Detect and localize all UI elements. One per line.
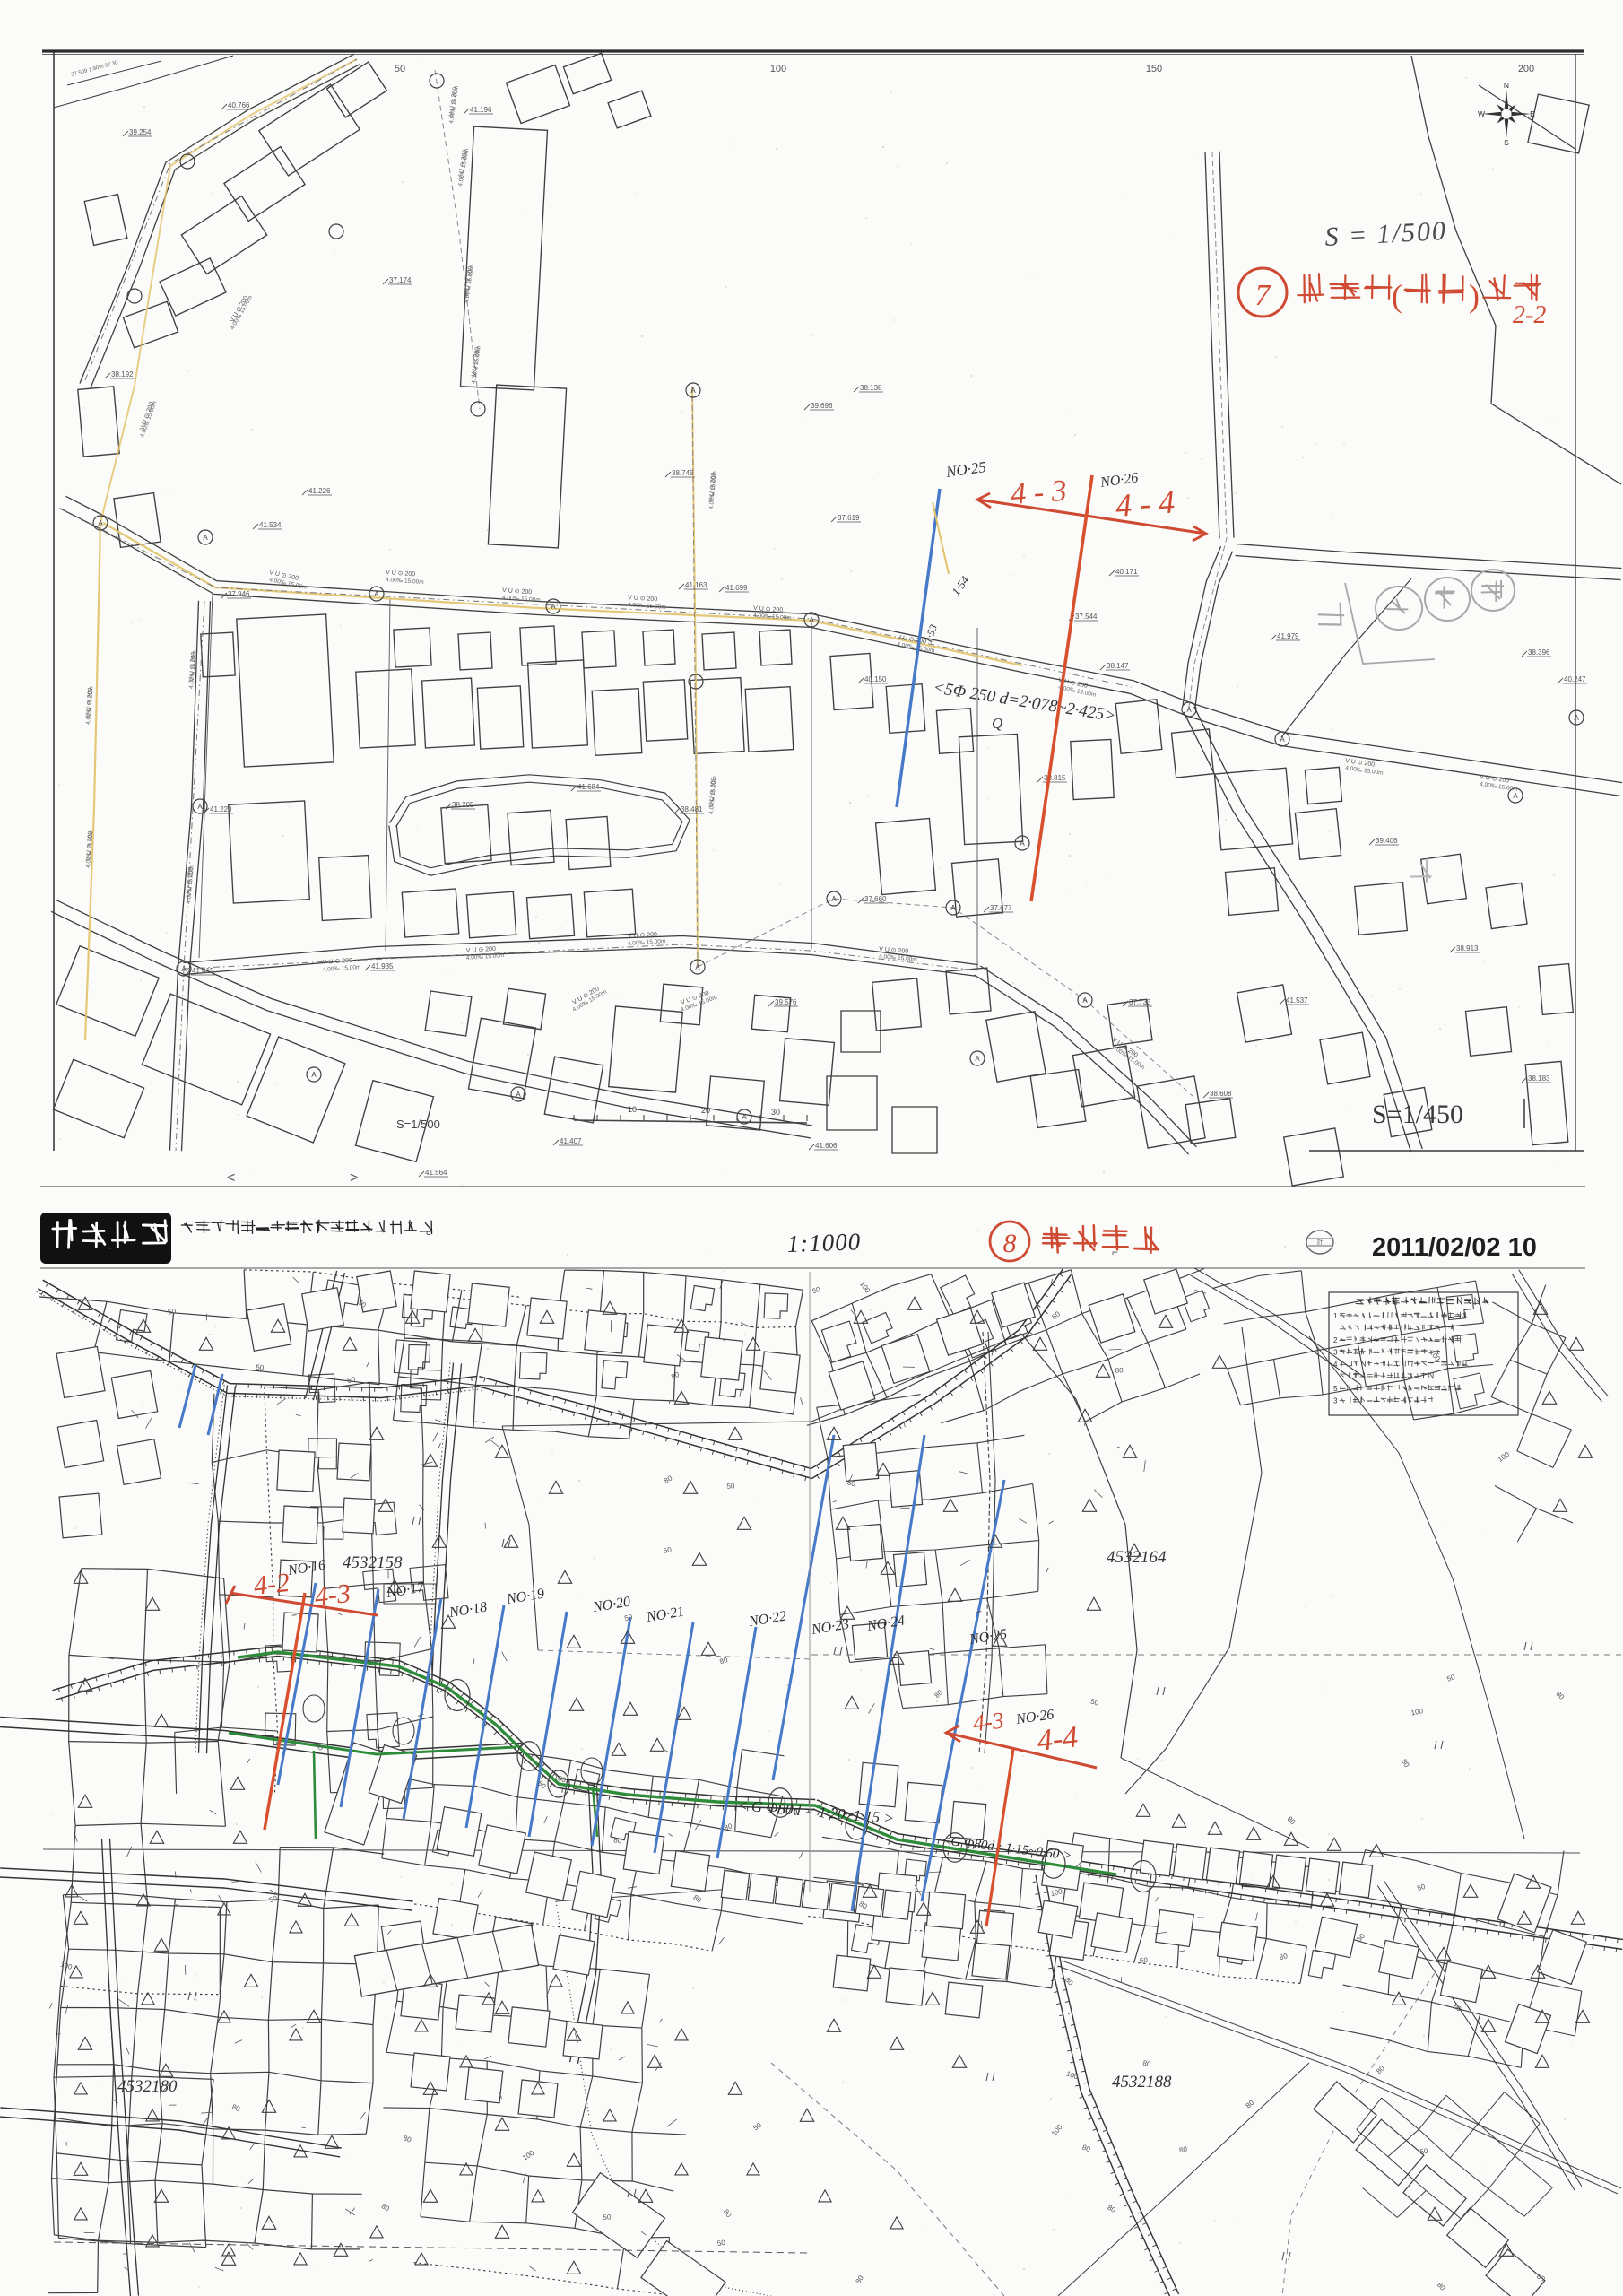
- svg-text:4-3: 4-3: [972, 1708, 1006, 1736]
- svg-text:4532180: 4532180: [117, 2077, 178, 2096]
- svg-text:37.619: 37.619: [838, 514, 860, 522]
- svg-text:38.396: 38.396: [1528, 648, 1550, 657]
- svg-text:41.220: 41.220: [210, 805, 232, 813]
- svg-text:A: A: [831, 895, 837, 903]
- svg-text:A: A: [311, 1071, 317, 1079]
- svg-text:50: 50: [1140, 1956, 1149, 1965]
- svg-text:20: 20: [701, 1106, 710, 1115]
- svg-text:3: 3: [1333, 1397, 1338, 1405]
- svg-text:S=1/450: S=1/450: [1372, 1100, 1463, 1129]
- svg-text:41.935: 41.935: [371, 962, 394, 970]
- svg-text:41.684: 41.684: [577, 783, 600, 791]
- svg-text:4532164: 4532164: [1107, 1548, 1167, 1567]
- svg-text:A: A: [1513, 792, 1518, 800]
- svg-text:41.415: 41.415: [192, 967, 214, 975]
- svg-text:50: 50: [256, 1363, 265, 1372]
- svg-text:50: 50: [603, 2213, 612, 2222]
- svg-text:4-4: 4-4: [1036, 1720, 1080, 1758]
- svg-text:37.174: 37.174: [389, 276, 412, 284]
- svg-text:A: A: [950, 904, 956, 912]
- svg-text:5: 5: [1333, 1385, 1338, 1393]
- svg-text:200: 200: [1518, 64, 1534, 74]
- svg-text:A: A: [1574, 714, 1579, 722]
- svg-text:2011/02/02 10: 2011/02/02 10: [1372, 1233, 1537, 1262]
- svg-text:39.576: 39.576: [775, 998, 797, 1006]
- svg-text:30: 30: [771, 1108, 780, 1117]
- svg-text:。: 。: [426, 1222, 438, 1237]
- svg-text:37.733: 37.733: [1129, 998, 1151, 1006]
- svg-text:37.660: 37.660: [864, 895, 887, 903]
- svg-text:38.205: 38.205: [452, 801, 474, 809]
- svg-text:1:1000: 1:1000: [786, 1228, 861, 1257]
- svg-text:41.606: 41.606: [815, 1142, 838, 1150]
- svg-text:4532188: 4532188: [1112, 2073, 1172, 2092]
- svg-text:8: 8: [1003, 1229, 1017, 1258]
- svg-text:A: A: [1020, 839, 1025, 848]
- svg-text:A: A: [809, 616, 814, 624]
- svg-text:(: (: [1392, 278, 1402, 314]
- svg-text:): ): [1469, 278, 1480, 314]
- svg-text:40.171: 40.171: [1115, 568, 1138, 576]
- svg-text:A: A: [1280, 735, 1285, 744]
- svg-text:10: 10: [628, 1105, 637, 1114]
- svg-text:A: A: [516, 1091, 521, 1099]
- svg-text:41.226: 41.226: [308, 487, 331, 495]
- svg-text:38.147: 38.147: [1107, 662, 1129, 670]
- svg-text:2: 2: [1333, 1336, 1338, 1344]
- svg-text:39.254: 39.254: [129, 128, 152, 136]
- svg-text:150: 150: [1146, 64, 1162, 74]
- svg-text:37.946: 37.946: [228, 590, 250, 598]
- svg-text:A: A: [197, 803, 203, 811]
- svg-text:50: 50: [726, 1482, 735, 1491]
- svg-text:40.766: 40.766: [228, 101, 250, 109]
- svg-text:3: 3: [1333, 1349, 1338, 1357]
- svg-text:41.196: 41.196: [470, 106, 492, 114]
- svg-text:38.192: 38.192: [111, 370, 134, 378]
- svg-text:>: >: [350, 1170, 358, 1186]
- svg-text:38.913: 38.913: [1456, 944, 1479, 952]
- svg-text:2-2: 2-2: [1513, 301, 1546, 329]
- svg-text:W: W: [1478, 109, 1485, 118]
- svg-text:A: A: [98, 519, 103, 527]
- svg-text:<: <: [227, 1170, 235, 1186]
- svg-text:38.138: 38.138: [860, 384, 882, 392]
- svg-text:A: A: [551, 603, 556, 611]
- svg-text:80: 80: [1115, 1366, 1124, 1374]
- svg-text:7: 7: [1255, 279, 1272, 312]
- svg-text:A: A: [975, 1055, 980, 1063]
- svg-text:38.183: 38.183: [1528, 1074, 1550, 1083]
- svg-text:41.163: 41.163: [685, 581, 707, 589]
- svg-text:A: A: [203, 534, 208, 542]
- svg-text:1: 1: [1333, 1312, 1338, 1320]
- svg-text:A: A: [695, 963, 700, 971]
- svg-text:100: 100: [770, 64, 786, 74]
- svg-text:4 - 4: 4 - 4: [1115, 483, 1176, 524]
- svg-text:S: S: [1504, 138, 1509, 147]
- svg-text:40.247: 40.247: [1564, 675, 1586, 683]
- svg-text:41.407: 41.407: [560, 1137, 582, 1145]
- svg-text:37.677: 37.677: [990, 904, 1012, 912]
- svg-text:計: 計: [1317, 1238, 1324, 1246]
- svg-text:A: A: [1082, 996, 1088, 1004]
- svg-text:N: N: [1504, 81, 1509, 90]
- svg-text:A: A: [742, 1113, 747, 1121]
- svg-text:50: 50: [395, 64, 405, 74]
- svg-text:41.699: 41.699: [725, 584, 748, 592]
- svg-text:41.537: 41.537: [1286, 996, 1308, 1004]
- svg-text:39.406: 39.406: [1376, 837, 1398, 845]
- svg-text:38.745: 38.745: [672, 469, 694, 477]
- svg-text:A: A: [181, 965, 187, 973]
- svg-text:4532158: 4532158: [343, 1553, 403, 1572]
- svg-text:A: A: [374, 590, 379, 598]
- svg-text:38.481: 38.481: [681, 805, 703, 813]
- svg-text:37.544: 37.544: [1075, 613, 1098, 621]
- svg-text:A: A: [1186, 706, 1192, 714]
- svg-text:39.696: 39.696: [811, 402, 833, 410]
- svg-text:4: 4: [1333, 1361, 1338, 1369]
- svg-text:S=1/500: S=1/500: [396, 1118, 440, 1131]
- svg-text:41.979: 41.979: [1277, 632, 1299, 640]
- svg-text:Q: Q: [992, 715, 1002, 732]
- svg-text:A: A: [690, 387, 696, 395]
- svg-text:40.150: 40.150: [864, 675, 887, 683]
- svg-text:41.534: 41.534: [259, 521, 282, 529]
- svg-text:⌐: ⌐: [1112, 1246, 1118, 1258]
- svg-text:38.608: 38.608: [1210, 1090, 1232, 1098]
- svg-text:41.564: 41.564: [425, 1169, 447, 1177]
- svg-text:E: E: [1530, 109, 1535, 118]
